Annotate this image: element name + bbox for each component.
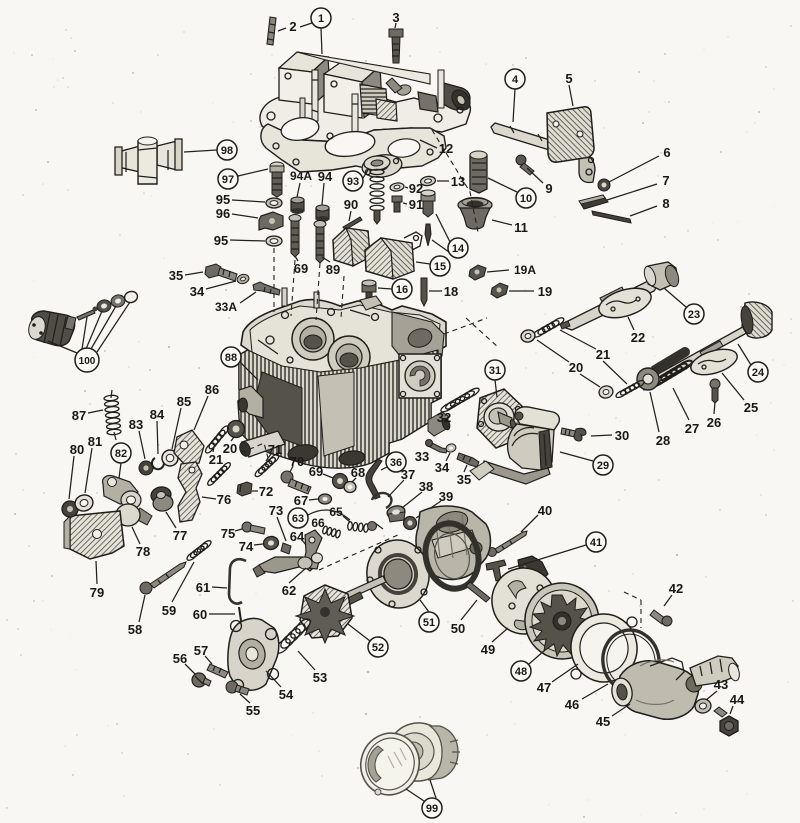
svg-text:38: 38 xyxy=(419,479,433,494)
svg-text:58: 58 xyxy=(128,622,142,637)
svg-text:9: 9 xyxy=(545,181,552,196)
svg-text:98: 98 xyxy=(221,145,233,157)
svg-text:83: 83 xyxy=(129,417,143,432)
svg-text:57: 57 xyxy=(194,643,208,658)
svg-text:19: 19 xyxy=(538,284,552,299)
svg-text:61: 61 xyxy=(196,580,210,595)
svg-text:6: 6 xyxy=(663,145,670,160)
svg-text:49: 49 xyxy=(481,642,495,657)
svg-text:74: 74 xyxy=(239,539,254,554)
svg-text:66: 66 xyxy=(311,516,325,530)
svg-text:77: 77 xyxy=(173,528,187,543)
svg-text:76: 76 xyxy=(217,492,231,507)
svg-text:43: 43 xyxy=(714,677,728,692)
svg-text:51: 51 xyxy=(423,617,435,629)
svg-text:40: 40 xyxy=(538,503,552,518)
svg-text:99: 99 xyxy=(426,803,438,815)
svg-text:93: 93 xyxy=(347,176,359,188)
svg-text:85: 85 xyxy=(177,394,191,409)
svg-text:3: 3 xyxy=(392,10,399,25)
svg-text:35: 35 xyxy=(169,268,183,283)
svg-text:41: 41 xyxy=(590,537,602,549)
svg-text:27: 27 xyxy=(685,421,699,436)
svg-text:48: 48 xyxy=(515,666,527,678)
svg-text:68: 68 xyxy=(351,465,365,480)
svg-text:28: 28 xyxy=(656,433,670,448)
svg-text:50: 50 xyxy=(451,621,465,636)
svg-text:62: 62 xyxy=(282,583,296,598)
svg-text:15: 15 xyxy=(434,261,446,273)
svg-text:29: 29 xyxy=(597,460,609,472)
svg-text:82: 82 xyxy=(115,448,127,460)
svg-text:78: 78 xyxy=(136,544,150,559)
svg-text:20: 20 xyxy=(569,360,583,375)
svg-text:65: 65 xyxy=(329,505,343,519)
svg-text:33: 33 xyxy=(415,449,429,464)
svg-text:5: 5 xyxy=(565,71,572,86)
svg-text:73: 73 xyxy=(269,503,283,518)
svg-text:1: 1 xyxy=(318,13,324,25)
svg-text:21: 21 xyxy=(209,452,223,467)
svg-text:52: 52 xyxy=(372,642,384,654)
svg-text:31: 31 xyxy=(489,365,501,377)
svg-text:60: 60 xyxy=(193,607,207,622)
svg-text:47: 47 xyxy=(537,680,551,695)
svg-text:34: 34 xyxy=(190,284,205,299)
svg-text:19A: 19A xyxy=(514,263,536,277)
svg-text:16: 16 xyxy=(396,284,408,296)
svg-text:21: 21 xyxy=(596,347,610,362)
svg-text:35: 35 xyxy=(457,472,471,487)
svg-text:59: 59 xyxy=(162,603,176,618)
svg-text:97: 97 xyxy=(222,174,234,186)
svg-text:88: 88 xyxy=(225,352,237,364)
svg-text:46: 46 xyxy=(565,697,579,712)
svg-text:55: 55 xyxy=(246,703,260,718)
svg-text:33A: 33A xyxy=(215,300,237,314)
svg-text:95: 95 xyxy=(216,192,230,207)
svg-text:18: 18 xyxy=(444,284,458,299)
svg-text:45: 45 xyxy=(596,714,610,729)
svg-text:14: 14 xyxy=(452,243,465,255)
svg-text:13: 13 xyxy=(451,174,465,189)
svg-text:4: 4 xyxy=(512,74,519,86)
svg-text:26: 26 xyxy=(707,415,721,430)
svg-text:89: 89 xyxy=(326,262,340,277)
svg-text:24: 24 xyxy=(752,367,765,379)
svg-text:42: 42 xyxy=(669,581,683,596)
svg-text:95: 95 xyxy=(214,233,228,248)
svg-text:37: 37 xyxy=(401,467,415,482)
svg-text:81: 81 xyxy=(88,434,102,449)
svg-text:10: 10 xyxy=(520,193,532,205)
svg-text:69: 69 xyxy=(309,464,323,479)
svg-text:53: 53 xyxy=(313,670,327,685)
svg-text:84: 84 xyxy=(150,407,165,422)
svg-text:69: 69 xyxy=(294,261,308,276)
svg-text:54: 54 xyxy=(279,687,294,702)
svg-text:7: 7 xyxy=(662,173,669,188)
svg-text:100: 100 xyxy=(79,356,96,367)
svg-text:94: 94 xyxy=(318,169,333,184)
svg-text:25: 25 xyxy=(744,400,758,415)
svg-text:8: 8 xyxy=(662,196,669,211)
svg-text:32: 32 xyxy=(437,410,451,425)
svg-text:20: 20 xyxy=(223,441,237,456)
svg-text:86: 86 xyxy=(205,382,219,397)
svg-text:2: 2 xyxy=(289,19,296,34)
svg-text:96: 96 xyxy=(216,206,230,221)
svg-text:67: 67 xyxy=(294,493,308,508)
svg-text:63: 63 xyxy=(292,513,304,525)
svg-text:30: 30 xyxy=(615,428,629,443)
svg-text:34: 34 xyxy=(435,460,450,475)
svg-text:44: 44 xyxy=(730,692,745,707)
svg-text:79: 79 xyxy=(90,585,104,600)
svg-text:94A: 94A xyxy=(290,169,312,183)
svg-text:22: 22 xyxy=(631,330,645,345)
svg-text:11: 11 xyxy=(514,220,528,235)
svg-text:56: 56 xyxy=(173,651,187,666)
svg-text:90: 90 xyxy=(344,197,358,212)
svg-text:80: 80 xyxy=(70,442,84,457)
svg-text:75: 75 xyxy=(221,526,235,541)
svg-text:23: 23 xyxy=(688,309,700,321)
svg-text:87: 87 xyxy=(72,408,86,423)
svg-text:72: 72 xyxy=(259,484,273,499)
